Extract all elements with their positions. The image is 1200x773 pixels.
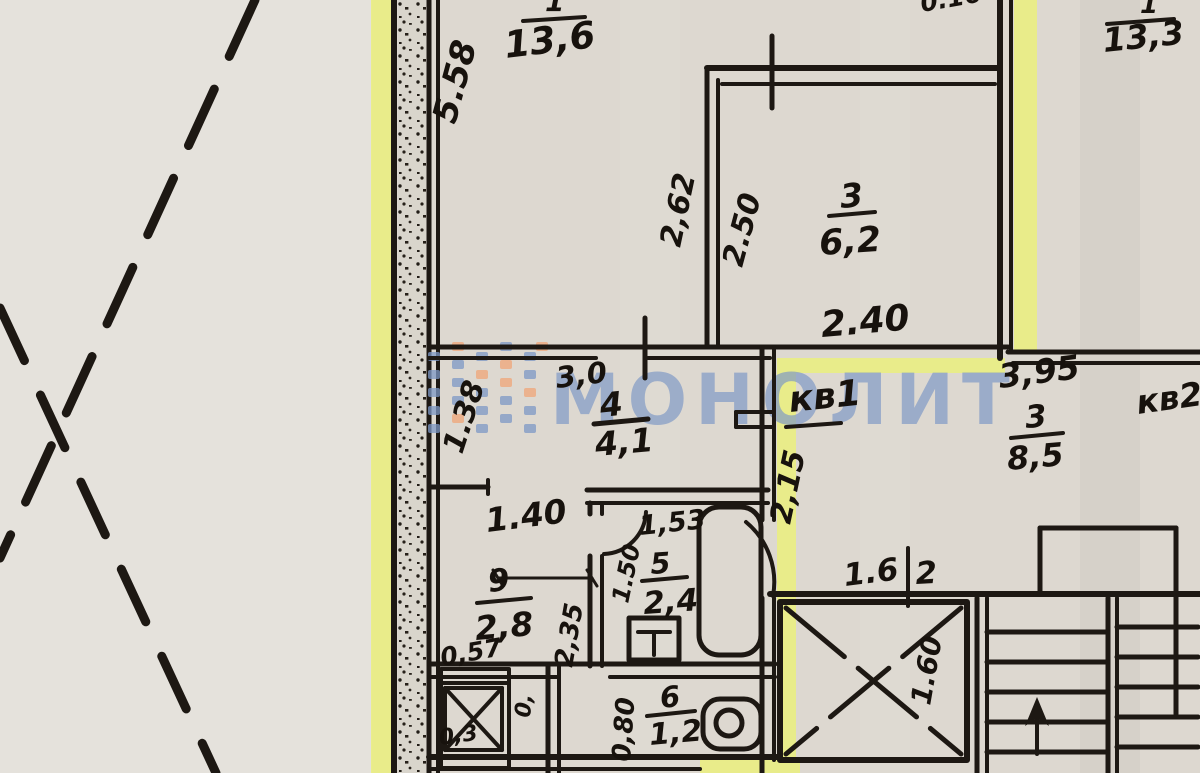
dim-1-6: 1.6 <box>842 552 901 594</box>
door-mark-0: 0, <box>511 693 538 719</box>
room-6-area: 1,2 <box>648 713 704 752</box>
floor-plan-drawing: МОНОЛИТ <box>0 0 1200 773</box>
room-9-number: 9 <box>486 562 511 600</box>
room-3a-number: 3 <box>838 175 864 216</box>
dim-2: 2 <box>915 555 938 592</box>
room-1a-number: 1 <box>545 0 564 18</box>
room-5-area: 2,4 <box>642 582 699 622</box>
room-4-number: 4 <box>597 384 625 425</box>
room-3b-area: 8,5 <box>1005 435 1065 478</box>
scanned-floor-plan: МОНОЛИТ <box>0 0 1200 773</box>
apartment-2-label: кв2 <box>1134 374 1200 422</box>
room-5-number: 5 <box>649 546 672 581</box>
dim-2-40: 2.40 <box>819 297 911 346</box>
room-4-area: 4,1 <box>592 420 655 464</box>
room-3b-number: 3 <box>1024 398 1049 436</box>
room-6-number: 6 <box>658 679 682 715</box>
room-3a-area: 6,2 <box>818 220 883 264</box>
apartment-1-label: кв1 <box>787 373 863 421</box>
dim-0-80: 0,80 <box>607 696 641 762</box>
dim-3-0: 3,0 <box>554 355 609 395</box>
